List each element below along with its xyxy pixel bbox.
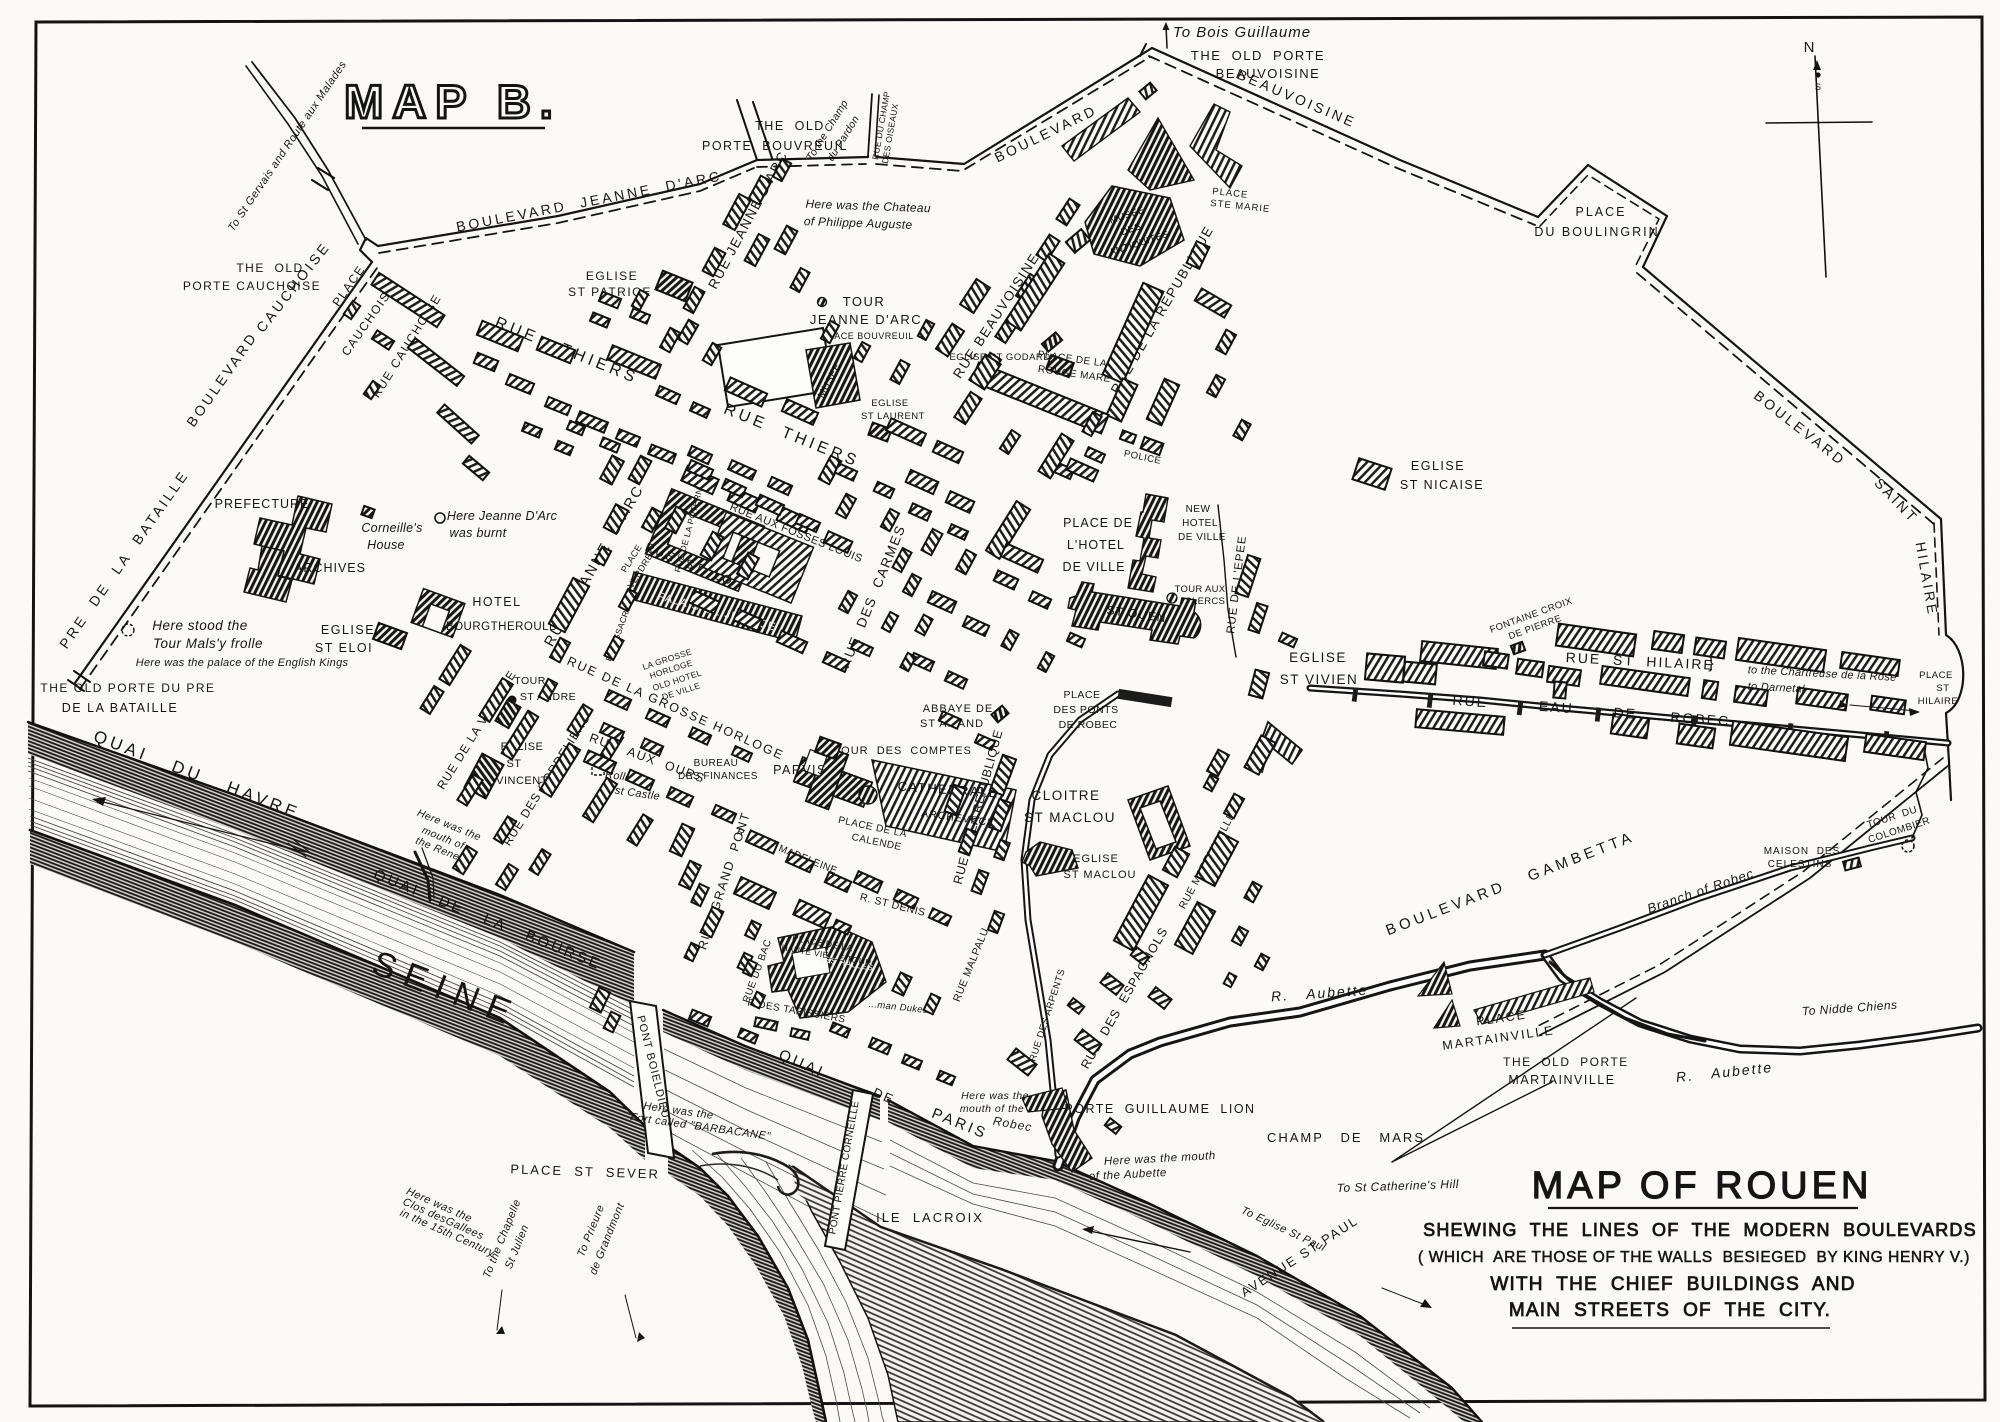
svg-text:MARTAINVILLE: MARTAINVILLE <box>1508 1073 1615 1087</box>
svg-text:DE VILLE: DE VILLE <box>1178 532 1226 543</box>
svg-text:DE: DE <box>1613 704 1638 722</box>
svg-text:DE ROBEC: DE ROBEC <box>1059 719 1118 731</box>
svg-text:RUE: RUE <box>1452 692 1489 710</box>
svg-text:WITH THE CHIEF BUILDINGS A: WITH THE CHIEF BUILDINGS AND <box>1490 1274 1855 1295</box>
svg-text:SHEWING THE LINES OF THE: SHEWING THE LINES OF THE MODERN BOULEVAR… <box>1423 1220 1977 1240</box>
svg-text:( WHICH ARE THOSE OF THE WALL: ( WHICH ARE THOSE OF THE WALLS BESIEGED … <box>1418 1249 1970 1266</box>
svg-text:DE VILLE: DE VILLE <box>1063 560 1126 574</box>
svg-text:mouth of the: mouth of the <box>960 1103 1024 1115</box>
svg-text:EGLISE: EGLISE <box>1289 650 1347 665</box>
svg-text:COUR DES COMPTES: COUR DES COMPTES <box>832 745 972 757</box>
svg-text:MAP B.: MAP B. <box>344 75 562 128</box>
svg-text:Here stood the: Here stood the <box>152 618 248 633</box>
svg-text:ST MACLOU: ST MACLOU <box>1064 869 1137 881</box>
svg-text:EGLISE: EGLISE <box>1073 853 1119 865</box>
svg-text:EAU: EAU <box>1538 698 1574 716</box>
svg-text:Corneille's: Corneille's <box>361 521 422 535</box>
svg-text:CELESTINS: CELESTINS <box>1768 859 1833 870</box>
svg-text:PARVIS: PARVIS <box>773 763 827 777</box>
svg-text:TOUR: TOUR <box>514 675 546 687</box>
svg-text:TOUR: TOUR <box>843 294 886 309</box>
svg-text:ST NICAISE: ST NICAISE <box>1400 478 1484 492</box>
svg-text:N: N <box>1804 39 1817 56</box>
svg-text:DU BOULINGRIN: DU BOULINGRIN <box>1534 225 1659 239</box>
svg-text:PORTE CAUCHOISE: PORTE CAUCHOISE <box>183 279 321 293</box>
svg-text:Here was the palace of the Eng: Here was the palace of the English Kings <box>136 657 349 669</box>
svg-text:PLACE DE: PLACE DE <box>1063 516 1133 530</box>
svg-text:Here was the: Here was the <box>961 1090 1029 1102</box>
svg-text:ST: ST <box>1936 683 1949 694</box>
svg-text:ARCHIVES: ARCHIVES <box>294 561 366 575</box>
svg-text:DE LA BATAILLE: DE LA BATAILLE <box>62 701 178 715</box>
svg-text:}: } <box>1708 655 1715 672</box>
svg-text:EGLISE: EGLISE <box>1411 459 1465 473</box>
svg-text:HOTEL: HOTEL <box>472 595 521 609</box>
svg-text:Here Jeanne D'Arc: Here Jeanne D'Arc <box>447 509 558 523</box>
svg-text:ST: ST <box>506 758 521 770</box>
svg-text:NEW: NEW <box>1186 504 1211 515</box>
svg-text:MAIN STREETS OF THE CITY.: MAIN STREETS OF THE CITY. <box>1509 1300 1831 1321</box>
svg-text:TOUR AUX: TOUR AUX <box>1175 584 1226 595</box>
svg-text:EGLISE: EGLISE <box>321 623 375 637</box>
svg-text:CHAMP DE MARS: CHAMP DE MARS <box>1267 1130 1425 1145</box>
svg-text:BUREAU: BUREAU <box>694 758 739 769</box>
svg-text:ILE LACROIX: ILE LACROIX <box>876 1210 984 1225</box>
svg-text:PLACE: PLACE <box>1064 689 1101 701</box>
svg-text:THE OLD: THE OLD <box>236 261 303 275</box>
svg-text:MAP OF ROUEN: MAP OF ROUEN <box>1532 1165 1873 1207</box>
svg-text:EGLISE: EGLISE <box>871 398 908 409</box>
svg-text:HILAIRE: HILAIRE <box>1918 696 1958 707</box>
svg-text:THE OLD PORTE: THE OLD PORTE <box>1503 1055 1629 1069</box>
svg-text:ABBAYE DE: ABBAYE DE <box>923 703 994 715</box>
svg-text:ST ELOI: ST ELOI <box>315 641 373 655</box>
svg-text:PORTE GUILLAUME LION: PORTE GUILLAUME LION <box>1064 1102 1255 1116</box>
svg-text:L'HOTEL: L'HOTEL <box>1067 538 1125 552</box>
svg-text:THE OLD PORTE: THE OLD PORTE <box>1191 48 1325 63</box>
svg-text:DES FINANCES: DES FINANCES <box>678 771 758 782</box>
svg-text:JEANNE D'ARC: JEANNE D'ARC <box>810 312 922 327</box>
svg-text:THE OLD PORTE DU PRE: THE OLD PORTE DU PRE <box>40 681 215 695</box>
svg-text:HOTEL: HOTEL <box>1182 518 1218 529</box>
svg-text:EGLISE: EGLISE <box>586 269 638 283</box>
svg-text:Tour Mals'y frolle: Tour Mals'y frolle <box>153 636 263 651</box>
svg-text:DES PONTS: DES PONTS <box>1053 704 1118 716</box>
svg-text:MAISON DES: MAISON DES <box>1764 846 1841 857</box>
svg-text:To Bois Guillaume: To Bois Guillaume <box>1173 24 1311 41</box>
svg-text:CLOITRE: CLOITRE <box>1031 788 1100 803</box>
svg-text:ST MACLOU: ST MACLOU <box>1024 810 1116 825</box>
svg-text:was burnt: was burnt <box>450 526 507 540</box>
svg-text:House: House <box>367 538 405 552</box>
svg-text:THE OLD: THE OLD <box>755 119 825 133</box>
svg-text:PLACE: PLACE <box>1919 670 1953 681</box>
svg-text:PLACE: PLACE <box>1576 205 1627 219</box>
svg-text:VINCENT: VINCENT <box>496 775 548 787</box>
svg-text:PREFECTURE: PREFECTURE <box>215 497 310 511</box>
svg-text:ST VIVIEN: ST VIVIEN <box>1280 672 1359 687</box>
svg-text:S: S <box>1815 82 1823 92</box>
